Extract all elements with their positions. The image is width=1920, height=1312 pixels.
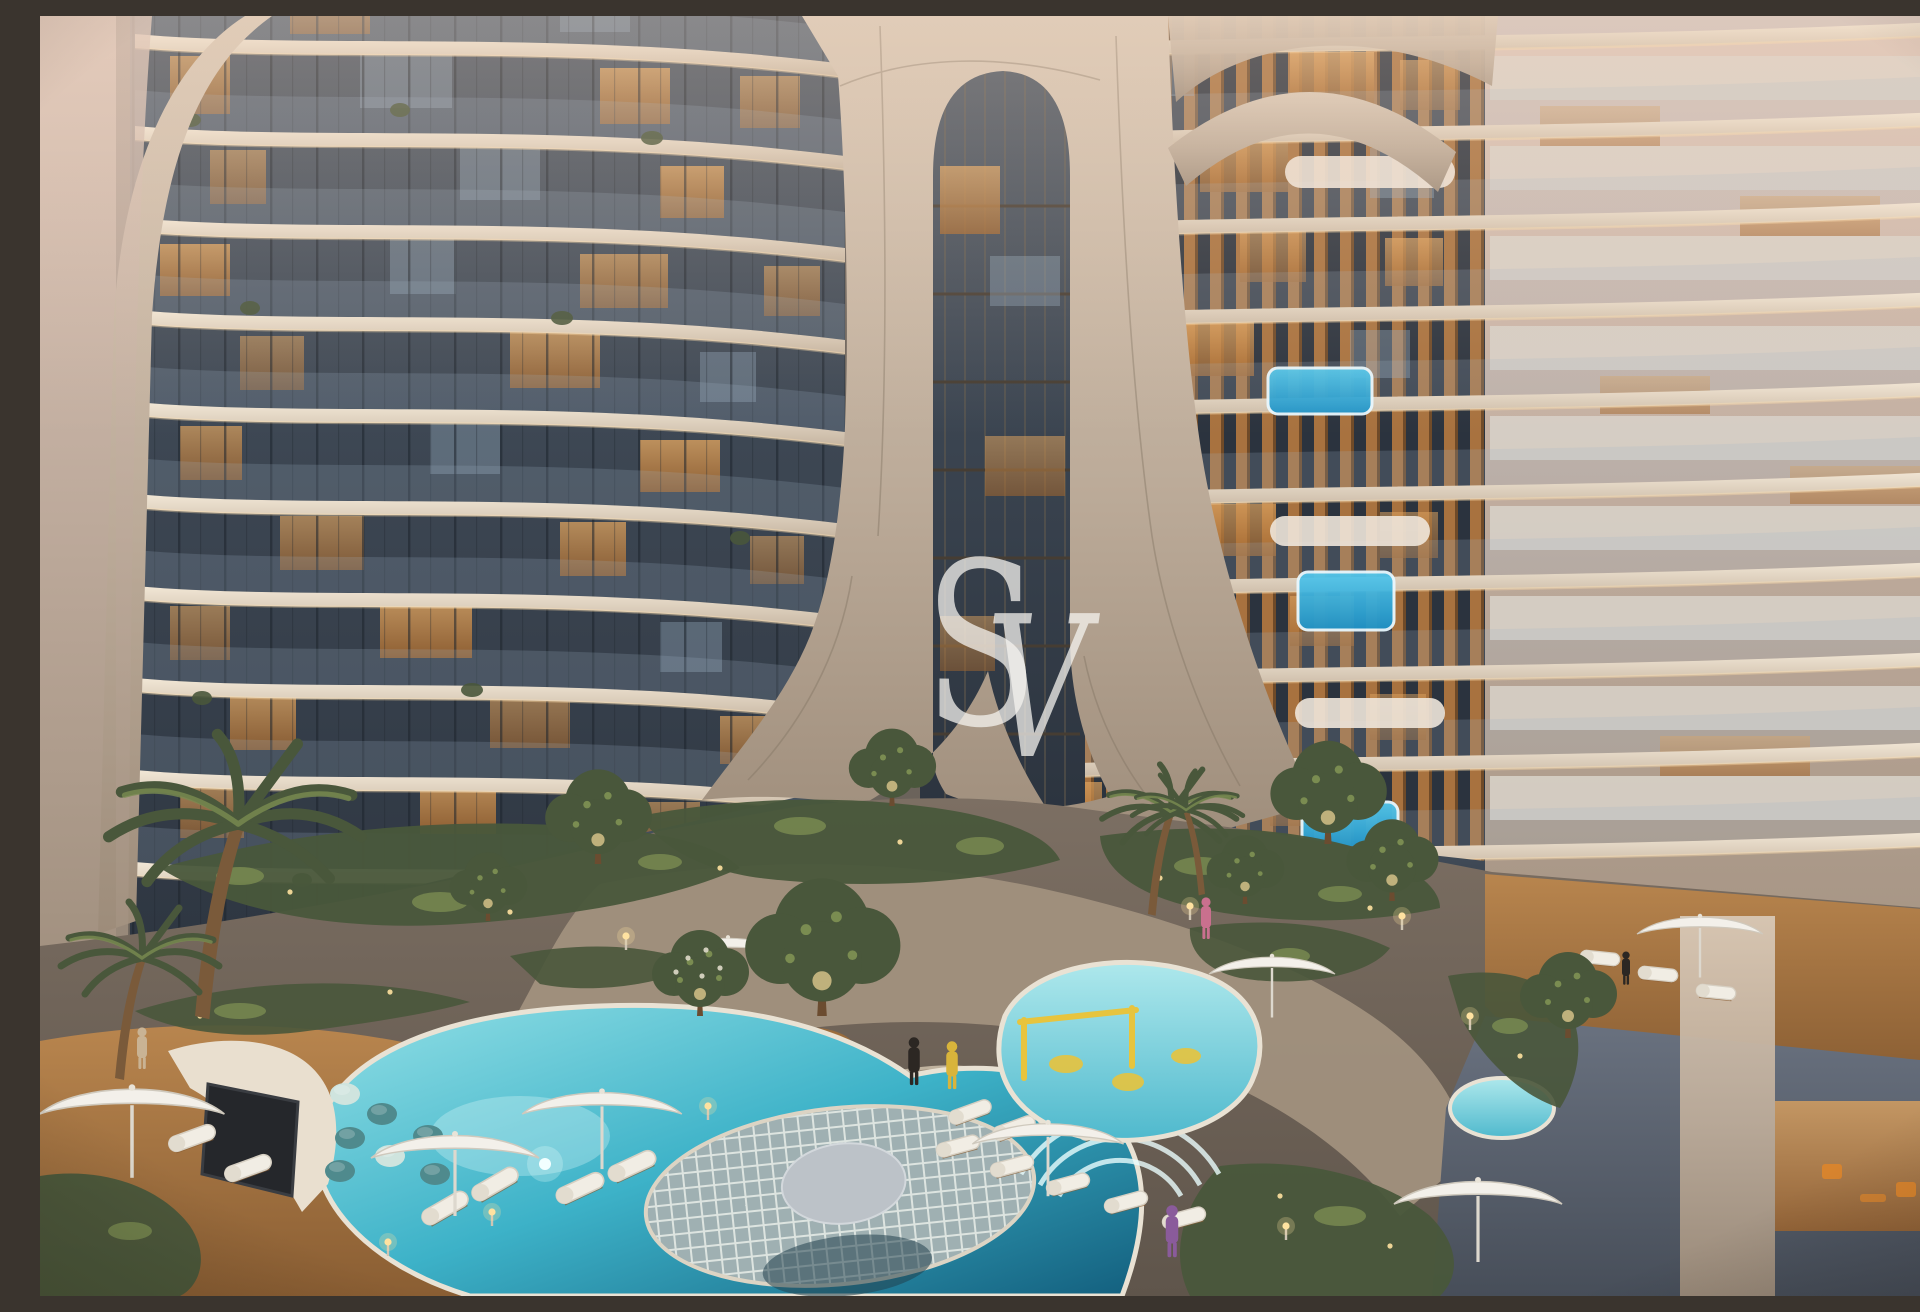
architectural-render: S V xyxy=(40,16,1920,1296)
watermark-letter-v: V xyxy=(986,575,1100,803)
render-canvas: S V xyxy=(40,16,1920,1296)
